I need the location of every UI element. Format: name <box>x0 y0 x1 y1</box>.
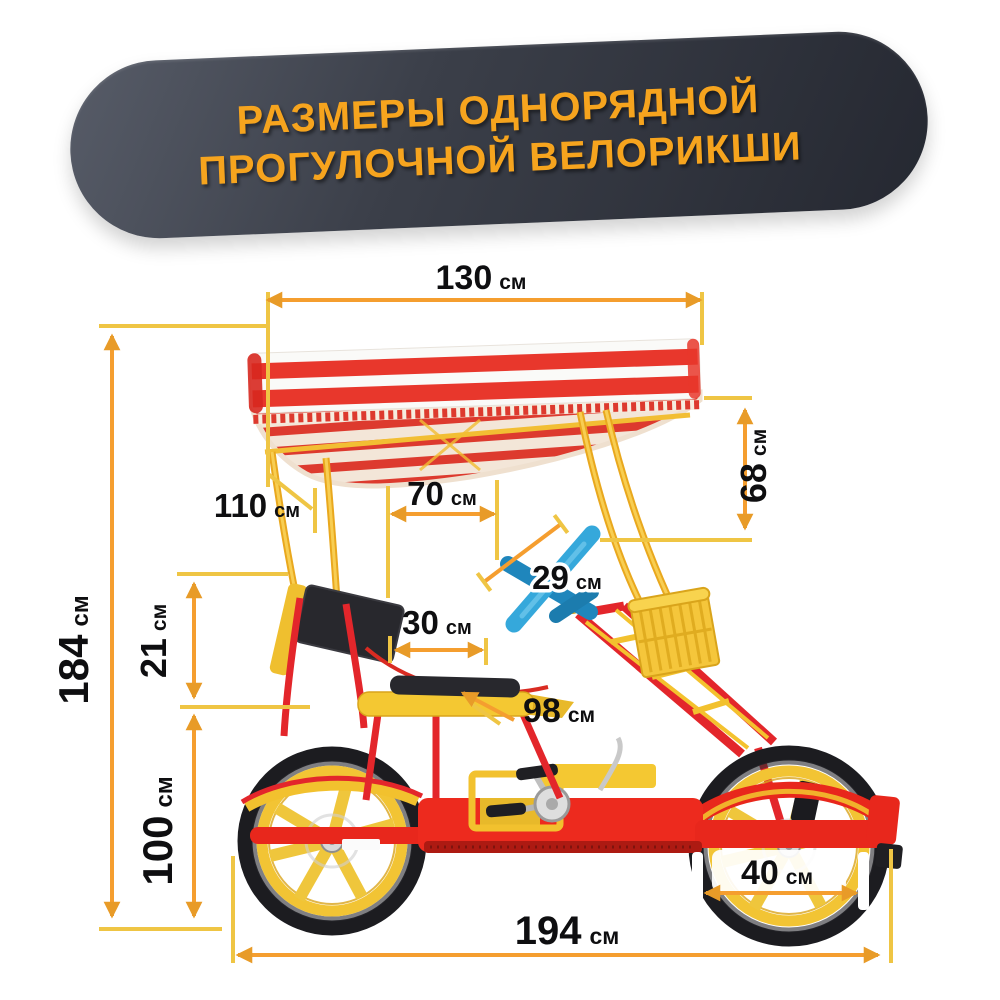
seat-cushion <box>390 675 520 697</box>
front-basket <box>627 587 721 678</box>
seat-to-handlebar-label: 70см <box>407 475 477 512</box>
dimension-canopy-pole-height: 110см <box>214 474 315 533</box>
seat-depth-label: 30см <box>402 604 472 641</box>
dimension-seat-depth: 30см <box>390 604 486 665</box>
dimension-seat-height: 100см <box>134 716 194 916</box>
seat-front-length-label: 98см <box>523 692 595 730</box>
diagram-canvas: 130см 68см 110см 184см 21см <box>0 0 1000 1000</box>
canopy-top <box>247 339 701 420</box>
backrest-height-label: 21см <box>133 604 174 678</box>
handlebar-size-label: 29см <box>532 559 602 596</box>
rickshaw-illustration <box>242 339 903 939</box>
seat-height-label: 100см <box>134 776 181 885</box>
canopy-pole-height-label: 110см <box>214 487 300 524</box>
frame-sticker <box>342 839 380 850</box>
infographic: РАЗМЕРЫ ОДНОРЯДНОЙ ПРОГУЛОЧНОЙ ВЕЛОРИКШИ <box>0 0 1000 1000</box>
canopy-width-label: 130см <box>436 259 527 297</box>
overall-length-label: 194см <box>515 909 620 953</box>
canopy-side-height-label: 68см <box>733 429 774 503</box>
overall-height-label: 184см <box>50 595 97 704</box>
